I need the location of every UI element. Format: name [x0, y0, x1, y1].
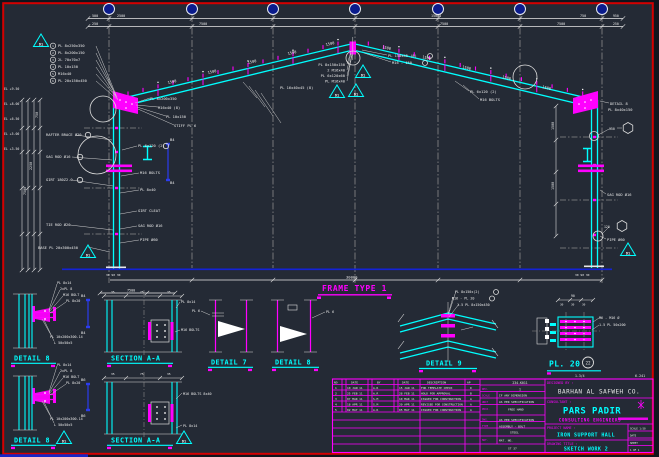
annotation-label: 35: [111, 290, 115, 294]
annotation-label: 950: [613, 14, 619, 18]
owner-name: BARHAN AL SAFWEH CO.: [558, 389, 640, 396]
rev-cell: REVISED FOR CONSTRUCTION: [421, 402, 463, 406]
rev-cell: 28 FEB 11: [399, 391, 415, 395]
annotation-label: PL 6: [192, 309, 200, 313]
purlin-dot: [582, 89, 583, 90]
rev-cell: A.R: [373, 386, 378, 390]
annotation-label: 1.5 PL 50x200: [599, 323, 626, 327]
annotation-label: SAG ROD Ø16: [46, 154, 70, 159]
detail8-row2-title: DETAIL 8: [14, 437, 50, 445]
consultant-label: CONSULTANT :: [547, 400, 572, 404]
unit-label: UNIT: [482, 400, 489, 404]
grid-bubble: [597, 4, 608, 15]
rev-cell: 25 FEB 11: [347, 391, 363, 395]
purlin-dot: [398, 46, 399, 47]
annotation-label: PL 8x150x(2): [455, 290, 480, 294]
rev-cell: 10 MAR 11: [399, 397, 415, 401]
annotation-label: 6-241: [635, 374, 645, 378]
grid-bubble: [104, 4, 115, 15]
mid-r7: ASSEMBLY - BOLT: [499, 424, 525, 428]
detail7-title: DETAIL 7: [211, 359, 247, 367]
annotation-label: M16 BOLTS: [181, 328, 199, 332]
annotation-label: 30: [571, 303, 575, 307]
annotation-label: 7500: [557, 22, 565, 26]
annotation-label: PL 10x200x300-14: [50, 335, 83, 339]
section-cut-arrow-icon: [86, 383, 90, 385]
annotation-label: PL 10x150: [166, 115, 186, 119]
drawing-canvas[interactable]: FRAME TYPE 1 DETAIL 8 SECTION A-A DETAIL…: [0, 0, 659, 457]
dwg-no: 234-K011: [512, 381, 527, 385]
purlin-dot: [490, 67, 491, 68]
girt-cleat: [115, 127, 118, 129]
mid-r8: STEEL: [510, 430, 519, 434]
annotation-label: 75: [140, 372, 144, 376]
rev-no: 1: [519, 387, 521, 391]
rev-header: NO: [334, 380, 338, 384]
annotation-label: M16x40 (8): [158, 106, 180, 110]
rev-cell: ISSUED FOR CONSTRUCTION: [421, 408, 461, 412]
frame-type-title: FRAME TYPE 1: [322, 284, 387, 293]
right-base-plate: [584, 266, 604, 268]
rev-cell: ISSUED FOR CONSTRUCTION: [421, 397, 461, 401]
detail-marker-label: D1: [361, 72, 366, 77]
pl20-badge: 22: [585, 361, 591, 366]
annotation-label: PL 6x120 (2): [138, 144, 165, 148]
sub-row-page: 1 OF 1: [630, 448, 640, 452]
detail-marker-label: D1: [86, 252, 91, 257]
mid-r6: AS PER SPECIFICATION: [499, 418, 534, 422]
section-row1-title: SECTION A-A: [111, 355, 160, 363]
grid-bubble: [187, 4, 198, 15]
annotation-label: M16 BOLTS: [480, 98, 500, 102]
annotation-label: DETAIL 8: [610, 102, 628, 106]
girt-cleat: [593, 164, 596, 166]
rev-cell: 20 APR 11: [399, 402, 415, 406]
rev-cell: S.M: [373, 397, 378, 401]
annotation-label: PL 8x14: [183, 424, 197, 428]
consultant-sub: CONSULTING ENGINEERS: [559, 418, 621, 423]
detail-marker-label: D1: [182, 438, 187, 443]
annotation-label: EL +8.00: [4, 102, 19, 106]
annotation-label: 30: [582, 303, 586, 307]
annotation-label: PL 8x250x350: [58, 44, 85, 48]
grid-bubble: [515, 4, 526, 15]
annotation-label: 2L 70x70x7: [58, 58, 80, 62]
detail-marker-label: D1: [39, 41, 44, 46]
annotation-label: 30 90 30: [106, 273, 121, 277]
mid-r5: FREE HAND: [508, 407, 524, 411]
rev-cell: FOR TEMPLATE CHECK: [421, 386, 453, 390]
annotation-label: 750: [580, 14, 586, 18]
annotation-label: PL 8x20: [66, 381, 80, 385]
annotation-label: PL 8x200x350: [150, 97, 177, 101]
annotation-label: PL 8x20: [66, 299, 80, 303]
annotation-label: PL 8x200x150: [58, 51, 85, 55]
annotation-label: PL 20x150x450: [58, 79, 87, 83]
mid-r3: IF ANY DIMENSION: [499, 394, 527, 398]
grid-bubble: [350, 4, 361, 15]
annotation-label: 90: [571, 294, 575, 298]
mid-r9: MAT. NO.: [499, 438, 513, 442]
annotation-label: SAG ROD Ø16: [138, 223, 162, 228]
annotation-label: 7500: [23, 187, 27, 195]
purlin-dot: [157, 82, 158, 83]
annotation-label: 35: [167, 372, 171, 376]
annotation-label: 2 M16x40: [327, 69, 345, 73]
rev-cell: D: [470, 386, 472, 390]
annotation-label: B6: [81, 377, 86, 382]
annotation-label: 500: [92, 14, 98, 18]
annotation-label: RAFTER BRACE Ø20: [46, 132, 82, 137]
annotation-label: B4: [81, 293, 86, 298]
girt-cleat: [593, 199, 596, 201]
rev-cell: 15 JAN 11: [399, 386, 415, 390]
annotation-label: EL +3.50: [4, 147, 19, 151]
section-cut-arrow-icon: [86, 299, 90, 301]
annotation-label: PL 150x45 (8): [388, 54, 417, 58]
section-row2-title: SECTION A-A: [111, 437, 160, 445]
rev-cell: 18 APR 11: [347, 402, 363, 406]
annotation-label: 7500: [127, 289, 135, 293]
detail8-row1-title: DETAIL 8: [14, 355, 50, 363]
rev-cell: 5: [335, 408, 337, 412]
rev-cell: B: [470, 391, 472, 395]
annotation-label: EL +5.00: [4, 132, 19, 136]
rev-cell: A.R: [373, 391, 378, 395]
rev-cell: A: [470, 408, 472, 412]
proj-label: PROJ.: [482, 407, 490, 411]
cad-sheet: FRAME TYPE 1 DETAIL 8 SECTION A-A DETAIL…: [0, 0, 659, 457]
annotation-label: 7500: [440, 22, 448, 26]
annotation-label: EL +9.50: [4, 87, 19, 91]
drawing-title: SKETCH WORK 2: [564, 447, 608, 453]
type-label: TYPE: [482, 424, 489, 428]
rev-header: DATE: [351, 380, 358, 384]
annotation-label: B4: [81, 330, 86, 335]
annotation-label: M16 BOLTS: [140, 171, 160, 175]
rev-header: DESCRIPTION: [427, 380, 446, 384]
owner-label: DESIGNED BY :: [547, 381, 574, 385]
annotation-label: GIRT CLEAT: [138, 209, 161, 213]
revision-table: NODATEBYDATEDESCRIPTIONAP110 JAN 11A.R15…: [334, 380, 472, 412]
scale-label: SCALE: [482, 393, 490, 397]
rev-cell: 05 MAY 11: [399, 408, 415, 412]
detail-marker-label: D1: [626, 250, 631, 255]
girt-cleat: [115, 187, 118, 189]
annotation-label: 150: [609, 127, 615, 131]
rev-cell: 1: [335, 386, 337, 390]
annotation-label: TIE ROD Ø20: [46, 222, 70, 227]
rev-cell: 3: [335, 397, 337, 401]
annotation-label: PL 10x200x300-14: [50, 417, 83, 421]
sub-row-date: DATE: [630, 434, 637, 438]
detail-marker-label: D1: [335, 92, 340, 97]
annotation-label: PL 8x14: [57, 281, 71, 285]
left-base-plate: [106, 267, 126, 269]
annotation-label: BASE PL 20x300x450: [38, 246, 78, 250]
sub-row-sheet: SHEET: [630, 441, 638, 445]
detail-marker-label: D1: [62, 438, 67, 443]
section-cut-arrow-icon: [86, 326, 90, 328]
annotation-label: PL M16x40: [325, 80, 345, 84]
annotation-label: M16 BOLTS 8x40: [183, 392, 212, 396]
mid-r4: AS PER SPECIFICATION: [499, 400, 534, 404]
rev-header: BY: [377, 380, 381, 384]
annotation-label: 30: [560, 303, 564, 307]
annotation-label: PL 6x120 (2): [470, 90, 497, 94]
rev-cell: 2: [335, 391, 337, 395]
grid-bubble: [268, 4, 279, 15]
annotation-label: 2xPL 8: [60, 287, 72, 291]
annotation-label: 35: [111, 372, 115, 376]
purlin-dot: [202, 71, 203, 72]
rev-cell: 4: [335, 402, 337, 406]
annotation-label: 15000: [431, 14, 441, 18]
rev-header: AP: [467, 380, 471, 384]
consultant-name: PARS PADIR: [563, 407, 621, 417]
mid-r10: ST 37: [508, 446, 517, 450]
annotation-label: 750: [35, 112, 39, 118]
girt-cleat: [115, 233, 118, 235]
annotation-label: 1500: [551, 182, 555, 190]
annotation-label: PL 8x14: [57, 363, 71, 367]
annotation-label: 1-3/4: [575, 374, 585, 378]
rev-cell: 07 MAR 11: [347, 397, 363, 401]
purlin-dot: [337, 39, 338, 40]
detail-marker-label: D1: [354, 91, 359, 96]
annotation-label: M16x40: [58, 72, 71, 76]
annotation-label: 2250: [29, 162, 33, 170]
rev-cell: HOLD FOR APPROVAL: [421, 391, 451, 395]
annotation-label: 75: [140, 290, 144, 294]
annotation-label: 35: [167, 290, 171, 294]
sub-row-scale: SCALE 1:50: [630, 427, 646, 431]
annotation-label: M16 - PL 20: [452, 297, 474, 301]
annotation-label: B4: [170, 180, 175, 185]
rev-cell: 02 MAY 11: [347, 408, 363, 412]
annotation-label: M16 - 150: [392, 61, 412, 65]
annotation-label: 7500: [199, 22, 207, 26]
annotation-label: 250: [92, 22, 98, 26]
rev-cell: A: [470, 397, 472, 401]
annotation-label: 120: [604, 225, 610, 229]
annotation-label: PL 8x40: [140, 188, 156, 192]
project-name: IRON SUPPORT HALL: [557, 433, 615, 439]
section-cut-arrow-icon: [86, 409, 90, 411]
detail8-mid-title: DETAIL 8: [275, 359, 311, 367]
girt-cleat: [593, 136, 596, 138]
project-label: PROJECT NAME :: [547, 426, 576, 430]
annotation-label: M16 BOLT: [63, 293, 79, 297]
rev-cell: A: [470, 402, 472, 406]
annotation-label: 2xPL 8: [60, 369, 72, 373]
dwg-label: DWG.: [482, 418, 488, 422]
drawing-label: DRAWING TITLE :: [547, 442, 578, 446]
annotation-label: PL 8x150x150: [318, 63, 345, 67]
annotation-label: M16 BOLT: [63, 375, 79, 379]
annotation-label: EL +6.50: [4, 117, 19, 121]
annotation-label: 2500: [117, 14, 125, 18]
rev-label: REV.: [482, 387, 488, 391]
annotation-label: SAG ROD Ø16: [607, 192, 631, 197]
annotation-label: GIRT 180Z2.0: [46, 178, 73, 182]
detail9-title: DETAIL 9: [426, 360, 462, 368]
annotation-label: STIFF PL 6: [174, 124, 196, 128]
annotation-label: PL 6: [326, 310, 334, 314]
annotation-label: PL 16x40x45 (8): [280, 86, 313, 90]
annotation-label: PL 8x40x150: [608, 108, 632, 112]
rev-header: DATE: [402, 380, 409, 384]
annotation-label: PL 6x120x60: [321, 74, 345, 78]
annotation-label: 30000: [346, 275, 358, 280]
rev-cell: S.M: [373, 402, 378, 406]
pl20-title: PL. 20: [549, 360, 580, 369]
annotation-label: M6 - M16 Ø: [599, 315, 619, 320]
annotation-label: 1500: [551, 122, 555, 130]
annotation-label: 30 90 30: [575, 273, 590, 277]
rev-cell: A.R: [373, 408, 378, 412]
rev-cell: 10 JAN 11: [347, 386, 363, 390]
annotation-label: B6: [81, 413, 86, 418]
grid-bubble: [433, 4, 444, 15]
annotation-label: L 50x50x5: [54, 341, 72, 345]
annotation-label: 1.5 PL 8x150x450: [457, 303, 490, 307]
annotation-label: PL 8x14: [181, 300, 195, 304]
annotation-label: B4: [170, 137, 175, 142]
mat-label: MAT.: [482, 438, 488, 442]
annotation-label: PIPE Ø60: [140, 237, 158, 242]
purlin-dot: [444, 57, 445, 58]
annotation-label: 250: [613, 22, 619, 26]
annotation-label: PIPE Ø60: [607, 237, 625, 242]
annotation-label: L 50x50x5: [54, 423, 72, 427]
annotation-label: PL 10x150: [58, 65, 78, 69]
